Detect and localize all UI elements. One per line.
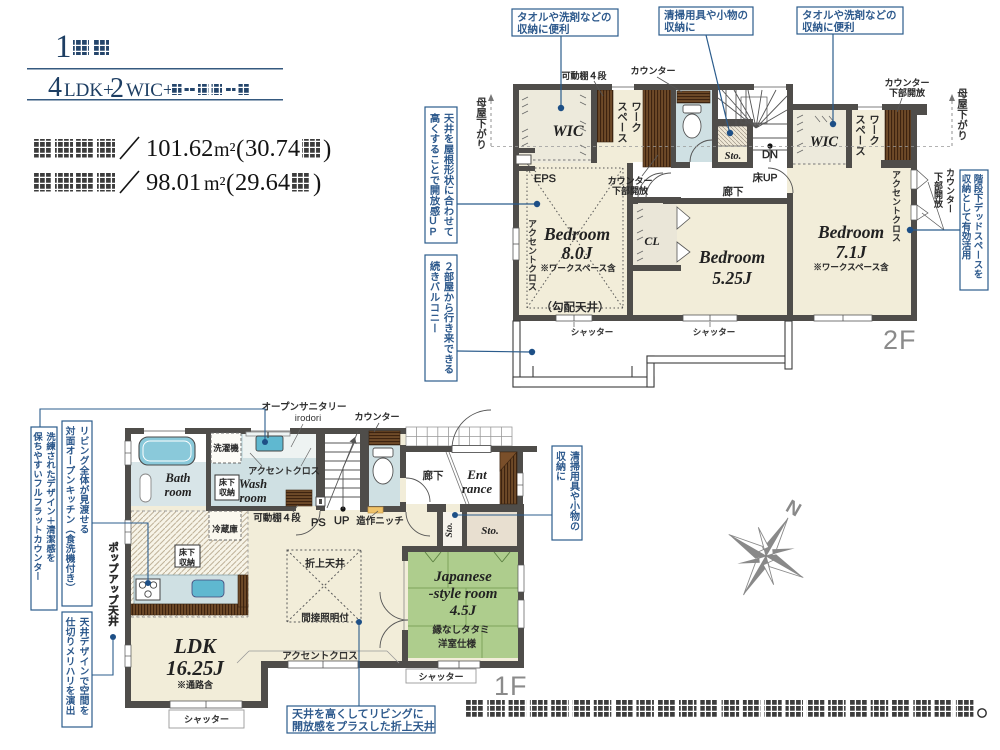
svg-text:可動棚４段: 可動棚４段: [561, 70, 606, 81]
svg-text:シャッター: シャッター: [418, 672, 463, 682]
svg-text:m²: m²: [204, 173, 226, 195]
svg-text:DN: DN: [762, 149, 778, 161]
svg-text:開放感をプラスした折上天井: 開放感をプラスした折上天井: [292, 719, 435, 733]
svg-text:Bedroom: Bedroom: [543, 224, 610, 244]
svg-text:※ワークスペース含: ※ワークスペース含: [540, 263, 616, 273]
svg-text:間接照明付: 間接照明付: [301, 612, 349, 624]
svg-text:対面オープンキッチン（食洗機付き）: 対面オープンキッチン（食洗機付き）: [64, 425, 76, 593]
svg-text:※通路含: ※通路含: [177, 679, 213, 690]
svg-text:room: room: [239, 491, 266, 505]
svg-text:): ): [323, 136, 331, 163]
svg-text:下部開放: 下部開放: [933, 172, 943, 209]
svg-text:Sto.: Sto.: [481, 525, 498, 537]
svg-text:収納に便利: 収納に便利: [802, 21, 855, 34]
svg-text:アクセントクロス: アクセントクロス: [282, 651, 358, 662]
svg-text:スペース: スペース: [854, 114, 866, 156]
svg-text:room: room: [164, 485, 191, 499]
svg-text:CL: CL: [644, 234, 659, 248]
svg-text:収納として有効活用: 収納として有効活用: [960, 173, 972, 260]
svg-text:縁なしタタミ: 縁なしタタミ: [432, 624, 489, 636]
svg-text:1: 1: [55, 29, 72, 65]
svg-text:Sto.: Sto.: [445, 522, 455, 537]
svg-text:ワーク: ワーク: [868, 114, 880, 146]
svg-text:4: 4: [48, 72, 62, 103]
svg-text:保ちやすいフルフラットカウンター: 保ちやすいフルフラットカウンター: [32, 431, 43, 581]
svg-text:Sto.: Sto.: [725, 151, 742, 162]
svg-text:30.74: 30.74: [245, 135, 300, 162]
svg-text:収納: 収納: [179, 557, 195, 567]
svg-text:オープンサニタリー: オープンサニタリー: [262, 402, 347, 413]
svg-text:※ワークスペース含: ※ワークスペース含: [813, 262, 889, 272]
svg-text:アクセントクロス: アクセントクロス: [527, 219, 537, 291]
svg-text:PS: PS: [311, 517, 326, 529]
svg-text:(: (: [226, 170, 234, 197]
svg-text:階段下デッドスペースを: 階段下デッドスペースを: [972, 174, 984, 279]
svg-text:仕切りメリハリを演出: 仕切りメリハリを演出: [64, 616, 76, 715]
svg-text:カウンター: カウンター: [945, 168, 955, 213]
svg-text:洗練されたデザイン＋清潔感を: 洗練されたデザイン＋清潔感を: [45, 431, 56, 562]
svg-text:収納: 収納: [219, 487, 235, 497]
svg-text:アクセントクロス: アクセントクロス: [891, 170, 901, 242]
svg-text:天井を高くしてリビングに: 天井を高くしてリビングに: [292, 707, 424, 721]
svg-text:（勾配天井）: （勾配天井）: [541, 300, 610, 314]
svg-text:収納に: 収納に: [664, 21, 696, 34]
svg-text:カウンター: カウンター: [630, 66, 675, 76]
svg-text:収納に: 収納に: [554, 451, 566, 481]
svg-text:2F: 2F: [883, 325, 917, 355]
svg-text:Bath: Bath: [164, 471, 190, 485]
svg-text:折上天井: 折上天井: [305, 557, 345, 570]
svg-text:4.5J: 4.5J: [449, 603, 477, 619]
svg-text:WIC: WIC: [552, 123, 583, 140]
svg-text:母屋下がり: 母屋下がり: [956, 88, 968, 141]
svg-text:WIC+: WIC+: [126, 80, 174, 101]
svg-text:床下: 床下: [219, 477, 235, 487]
svg-text:高くすることで開放感UP: 高くすることで開放感UP: [428, 112, 440, 238]
svg-text:98.01: 98.01: [146, 169, 201, 196]
svg-text:16.25J: 16.25J: [166, 656, 225, 680]
svg-text:廊下: 廊下: [723, 185, 744, 198]
svg-text:irodori: irodori: [295, 413, 321, 424]
svg-text:5.25J: 5.25J: [712, 268, 753, 288]
svg-text:Bedroom: Bedroom: [817, 222, 884, 242]
svg-text:アクセントクロス: アクセントクロス: [248, 466, 320, 476]
svg-text:ポップアップ天井: ポップアップ天井: [107, 541, 119, 627]
svg-text:タオルや洗剤などの: タオルや洗剤などの: [517, 11, 612, 24]
svg-text:清掃用具や小物の: 清掃用具や小物の: [664, 9, 748, 22]
svg-text:rance: rance: [462, 481, 493, 496]
svg-text:UP: UP: [334, 515, 349, 527]
svg-text:造作ニッチ: 造作ニッチ: [356, 515, 404, 527]
svg-text:可動棚４段: 可動棚４段: [253, 512, 301, 524]
svg-text:床下: 床下: [179, 547, 195, 557]
svg-text:-style room: -style room: [429, 586, 498, 602]
svg-text:7.1J: 7.1J: [836, 242, 868, 262]
svg-text:LDK: LDK: [173, 634, 218, 658]
svg-text:続きバルコニー: 続きバルコニー: [428, 260, 440, 333]
svg-text:シャッター: シャッター: [184, 715, 229, 725]
svg-text:カウンター: カウンター: [354, 412, 399, 422]
svg-text:カウンター: カウンター: [607, 176, 652, 186]
svg-text:29.64: 29.64: [235, 169, 290, 196]
svg-text:EPS: EPS: [534, 173, 556, 185]
svg-text:カウンター: カウンター: [884, 78, 929, 88]
svg-text:冷蔵庫: 冷蔵庫: [212, 524, 238, 534]
svg-text:ワーク: ワーク: [630, 101, 642, 133]
svg-text:清掃用具や小物の: 清掃用具や小物の: [568, 450, 580, 531]
svg-text:8.0J: 8.0J: [562, 243, 594, 263]
svg-text:リビング全体が見渡せる: リビング全体が見渡せる: [78, 426, 90, 534]
svg-text:): ): [313, 170, 321, 197]
svg-text:天井デザインで空間を: 天井デザインで空間を: [78, 617, 90, 715]
svg-text:タオルや洗剤などの: タオルや洗剤などの: [802, 9, 897, 22]
svg-text:天井を屋根形状に合わせて: 天井を屋根形状に合わせて: [442, 113, 454, 237]
svg-text:1F: 1F: [494, 671, 528, 701]
svg-text:下部開放: 下部開放: [612, 185, 648, 196]
svg-text:Japanese: Japanese: [433, 569, 492, 585]
svg-text:Bedroom: Bedroom: [698, 247, 765, 267]
svg-text:LDK+: LDK+: [64, 80, 114, 101]
svg-text:スペース: スペース: [616, 101, 628, 143]
svg-text:101.62: 101.62: [146, 135, 213, 162]
svg-text:WIC: WIC: [810, 134, 839, 150]
svg-text:廊下: 廊下: [423, 469, 444, 482]
svg-text:２部屋から行き来できる: ２部屋から行き来できる: [442, 261, 454, 374]
svg-text:Ent: Ent: [466, 467, 487, 482]
svg-text:シャッター: シャッター: [571, 327, 614, 337]
svg-text:収納に便利: 収納に便利: [517, 23, 570, 36]
svg-text:Wash: Wash: [239, 477, 267, 491]
svg-text:(: (: [236, 136, 244, 163]
svg-text:洋室仕様: 洋室仕様: [438, 638, 477, 650]
svg-text:下部開放: 下部開放: [889, 87, 925, 98]
svg-text:洗濯機: 洗濯機: [213, 443, 239, 453]
svg-text:m²: m²: [214, 139, 236, 161]
svg-text:シャッター: シャッター: [693, 327, 736, 337]
svg-text:床UP: 床UP: [752, 171, 777, 184]
svg-text:母屋下がり: 母屋下がり: [475, 97, 487, 150]
